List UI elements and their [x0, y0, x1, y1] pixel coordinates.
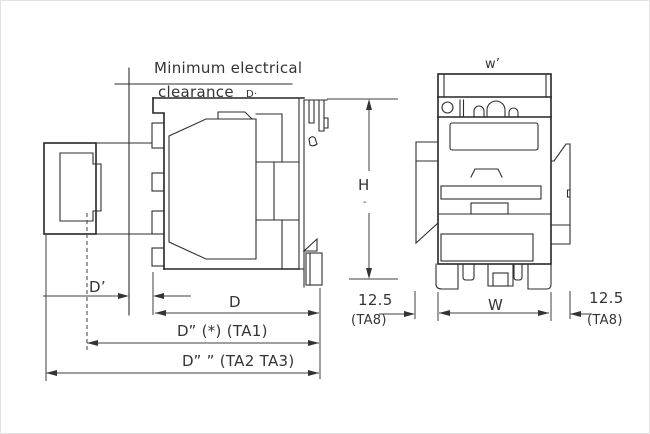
terminal-hole — [442, 102, 453, 113]
side-flange-left — [416, 142, 438, 243]
dim-label-d-ta1: D” (*) (TA1) — [177, 324, 268, 340]
arrowhead — [155, 310, 166, 316]
contactor-body-side — [152, 98, 304, 287]
body-left-edge — [153, 98, 164, 269]
dim-label-h-tick: - — [363, 198, 367, 209]
terminal-tab — [152, 248, 164, 266]
center-label-window — [471, 203, 508, 214]
terminal-arch — [487, 101, 505, 116]
arrowhead — [570, 311, 581, 317]
dim-label-w: W — [488, 298, 503, 314]
terminal-arch — [509, 108, 518, 116]
note-line2: clearance — [158, 85, 234, 101]
dim-label-d: D — [229, 295, 241, 311]
din-rail-clip-top — [304, 100, 328, 146]
arrowhead — [46, 370, 57, 376]
dimension-lines-front — [379, 291, 592, 321]
dim-label-offset-right-ref: (TA8) — [587, 314, 623, 328]
din-rail-clip-bottom — [304, 239, 322, 285]
technical-drawing — [1, 1, 650, 434]
label-w-top: w’ — [485, 58, 500, 72]
arrowhead — [439, 310, 450, 316]
terminal-arch — [474, 106, 484, 116]
arrowhead — [538, 310, 549, 316]
terminal-tab — [152, 173, 164, 191]
dim-label-offset-left-ref: (TA8) — [351, 314, 387, 328]
arrowhead — [153, 293, 164, 299]
arrowhead — [308, 340, 319, 346]
dim-label-offset-right: 12.5 — [589, 291, 624, 307]
terminal-tab — [152, 123, 164, 148]
contactor-dimension-drawing: Minimum electrical clearance D· D’ D D” … — [0, 0, 650, 434]
arrowhead — [308, 310, 319, 316]
bottom-feet — [436, 264, 551, 289]
upper-panel — [450, 123, 538, 150]
side-flange-right — [551, 144, 570, 244]
note-line1: Minimum electrical — [154, 61, 302, 77]
rail-latch-hook — [309, 137, 317, 146]
terminal-tab — [152, 211, 164, 234]
accessory-block — [44, 143, 152, 234]
nameplate-band — [441, 186, 541, 199]
arrowhead — [308, 370, 319, 376]
arrowhead — [366, 99, 372, 110]
arrowhead — [366, 268, 372, 279]
molding-outline — [169, 119, 256, 259]
coil-terminal-band — [442, 100, 518, 116]
arrowhead — [404, 311, 415, 317]
arrowhead — [87, 340, 98, 346]
center-bump — [471, 169, 502, 177]
accessory-step-profile — [60, 153, 101, 221]
front-view — [416, 74, 570, 289]
lower-panel — [441, 234, 533, 261]
dim-label-offset-left: 12.5 — [358, 293, 393, 309]
dim-label-d-ta2: D” ” (TA2 TA3) — [182, 354, 295, 370]
arrowhead — [118, 293, 129, 299]
note-suffix: D· — [246, 90, 257, 101]
dim-label-d-prime: D’ — [89, 280, 106, 296]
dim-label-h: H — [358, 178, 370, 194]
